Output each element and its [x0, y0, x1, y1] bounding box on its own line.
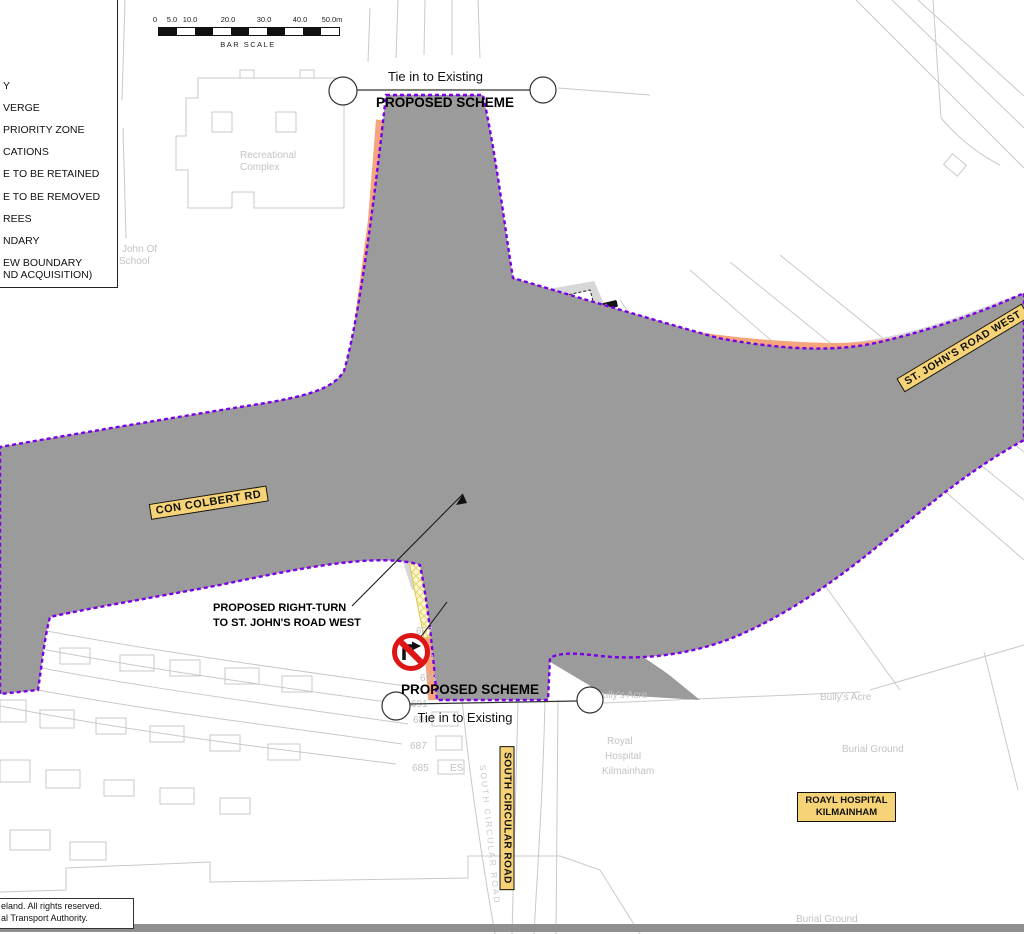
bar-scale-tick: 40.0	[293, 15, 308, 24]
bar-scale-tick: 0	[153, 15, 157, 24]
tie-in-bottom-scheme-label: PROPOSED SCHEME	[360, 682, 580, 697]
scheme-plan-canvas: Recreational Complex John Of School Bull…	[0, 0, 1024, 934]
school-label: John Of	[122, 244, 157, 255]
scheme-roads	[0, 95, 1024, 700]
bar-scale-tick: 20.0	[221, 15, 236, 24]
legend-item: REES	[3, 213, 32, 225]
bar-scale-tick: 30.0	[257, 15, 272, 24]
legend-item: PRIORITY ZONE	[3, 124, 84, 136]
legend-item: NDARY	[3, 235, 40, 247]
legend-box: Y VERGE PRIORITY ZONE CATIONS E TO BE RE…	[0, 0, 118, 288]
svg-text:687: 687	[410, 741, 427, 752]
sheet-neatline	[0, 924, 1024, 932]
recreational-complex-label: Recreational	[240, 150, 296, 161]
svg-text:Complex: Complex	[240, 162, 279, 173]
legend-item: VERGE	[3, 102, 40, 114]
bar-scale-tick: 50.0m	[322, 15, 343, 24]
tie-in-bottom-existing-label: Tie in to Existing	[355, 710, 575, 725]
svg-text:School: School	[119, 256, 150, 267]
legend-item: Y	[3, 80, 10, 92]
legend-item: CATIONS	[3, 146, 49, 158]
bar-scale-tick: 10.0	[183, 15, 198, 24]
south-circular-road-label: SOUTH CIRCULAR ROAD	[500, 746, 515, 890]
bullys-acre-label-right: Bully's Acre	[820, 692, 872, 703]
burial-ground-label-mid: Burial Ground	[842, 744, 904, 755]
no-right-turn-icon	[395, 636, 428, 669]
legend-item: EW BOUNDARY	[3, 257, 82, 269]
bar-scale-caption: BAR SCALE	[158, 40, 338, 49]
royal-hospital-label: Royal	[607, 736, 633, 747]
svg-text:685: 685	[412, 763, 429, 774]
es-fragment: ES	[450, 763, 464, 774]
svg-text:Kilmainham: Kilmainham	[602, 766, 654, 777]
royal-hospital-kilmainham-box: ROAYL HOSPITAL KILMAINHAM	[797, 792, 896, 822]
legend-item: ND ACQUISITION)	[3, 269, 92, 281]
scheme-boundary	[0, 95, 1024, 700]
svg-text:Hospital: Hospital	[605, 751, 641, 762]
legend-item: E TO BE RETAINED	[3, 168, 99, 180]
burial-ground-label-bottom: Burial Ground	[796, 914, 858, 925]
tie-in-top-existing-label: Tie in to Existing	[348, 69, 523, 84]
bullys-acre-label-left: Bully's Acre	[596, 690, 648, 701]
right-turn-annotation: PROPOSED RIGHT-TURN TO ST. JOHN'S ROAD W…	[213, 601, 361, 631]
legend-item: E TO BE REMOVED	[3, 191, 100, 203]
copyright-box: eland. All rights reserved. al Transport…	[0, 898, 134, 929]
tie-in-top-scheme-label: PROPOSED SCHEME	[345, 95, 545, 110]
bar-scale-tick: 5.0	[167, 15, 177, 24]
bar-scale-bar	[158, 27, 340, 36]
